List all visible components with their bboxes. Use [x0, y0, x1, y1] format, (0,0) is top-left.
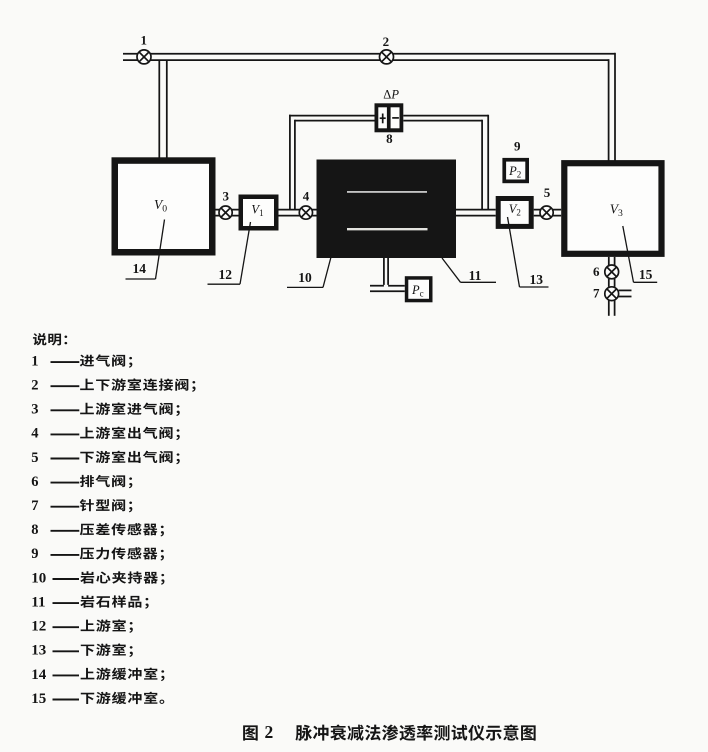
svg-text:15: 15 [31, 691, 46, 707]
svg-text:13: 13 [31, 643, 46, 659]
svg-text:3: 3 [222, 188, 229, 203]
svg-text:15: 15 [639, 267, 653, 282]
svg-text:2: 2 [265, 722, 274, 742]
svg-text:6: 6 [31, 474, 38, 490]
svg-text:14: 14 [31, 667, 47, 683]
svg-text:13: 13 [530, 272, 544, 287]
svg-text:11: 11 [31, 595, 45, 611]
svg-text:6: 6 [593, 264, 600, 279]
svg-text:10: 10 [31, 570, 46, 586]
svg-text:ΔP: ΔP [383, 88, 399, 102]
svg-text:14: 14 [132, 261, 146, 276]
svg-text:3: 3 [31, 402, 38, 418]
svg-text:1: 1 [141, 33, 148, 48]
svg-text:4: 4 [303, 189, 310, 204]
svg-text:2: 2 [31, 378, 38, 394]
svg-text:5: 5 [31, 450, 38, 466]
svg-text:1: 1 [31, 353, 38, 369]
svg-text:12: 12 [31, 619, 46, 635]
svg-text:2: 2 [383, 34, 390, 49]
svg-text:8: 8 [386, 131, 393, 146]
svg-text:11: 11 [469, 268, 482, 283]
svg-text:12: 12 [219, 267, 233, 282]
svg-text:7: 7 [31, 498, 38, 514]
svg-text:4: 4 [31, 426, 38, 442]
svg-text:7: 7 [593, 286, 600, 301]
svg-text:9: 9 [31, 546, 38, 562]
svg-text:8: 8 [31, 522, 38, 538]
svg-text:9: 9 [514, 138, 521, 153]
svg-text:5: 5 [544, 185, 551, 200]
svg-text:10: 10 [298, 270, 312, 285]
